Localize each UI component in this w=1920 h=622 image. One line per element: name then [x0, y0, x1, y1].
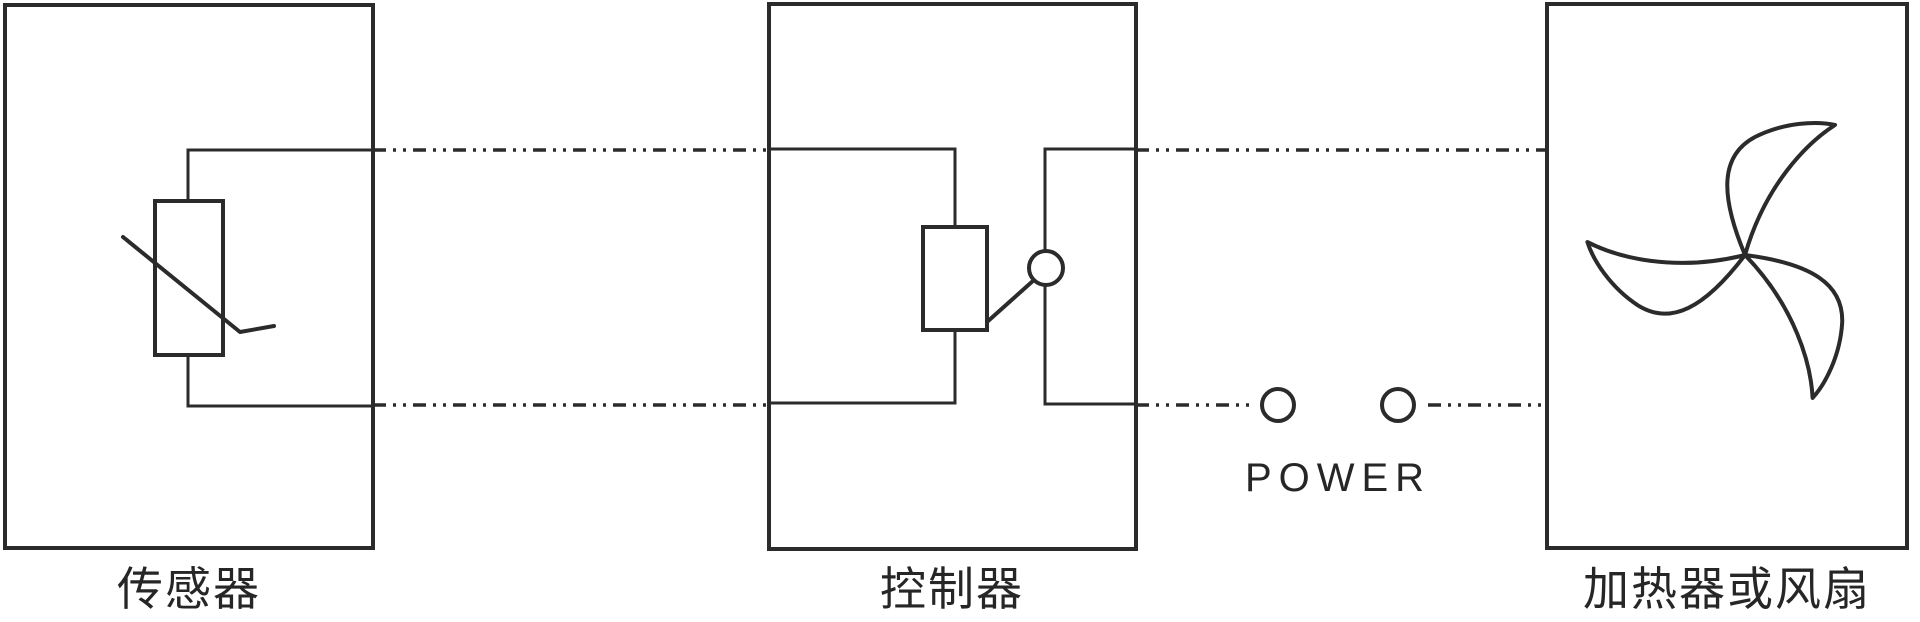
schematic-diagram: 传感器 控制器 加热器或风扇 POWER: [0, 0, 1920, 622]
controller-label: 控制器: [802, 564, 1102, 615]
switch-lever-icon: [987, 280, 1034, 322]
schematic-canvas: [0, 0, 1920, 622]
power-terminal-left-icon: [1262, 389, 1294, 421]
heater-fan-label: 加热器或风扇: [1577, 564, 1877, 615]
power-terminal-right-icon: [1382, 389, 1414, 421]
sensor-label: 传感器: [39, 564, 339, 615]
switch-contact-icon: [1029, 251, 1063, 285]
fan-icon: [1586, 123, 1869, 399]
thermistor-icon: [155, 201, 223, 355]
power-label: POWER: [1188, 456, 1488, 500]
relay-coil-icon: [923, 227, 987, 330]
